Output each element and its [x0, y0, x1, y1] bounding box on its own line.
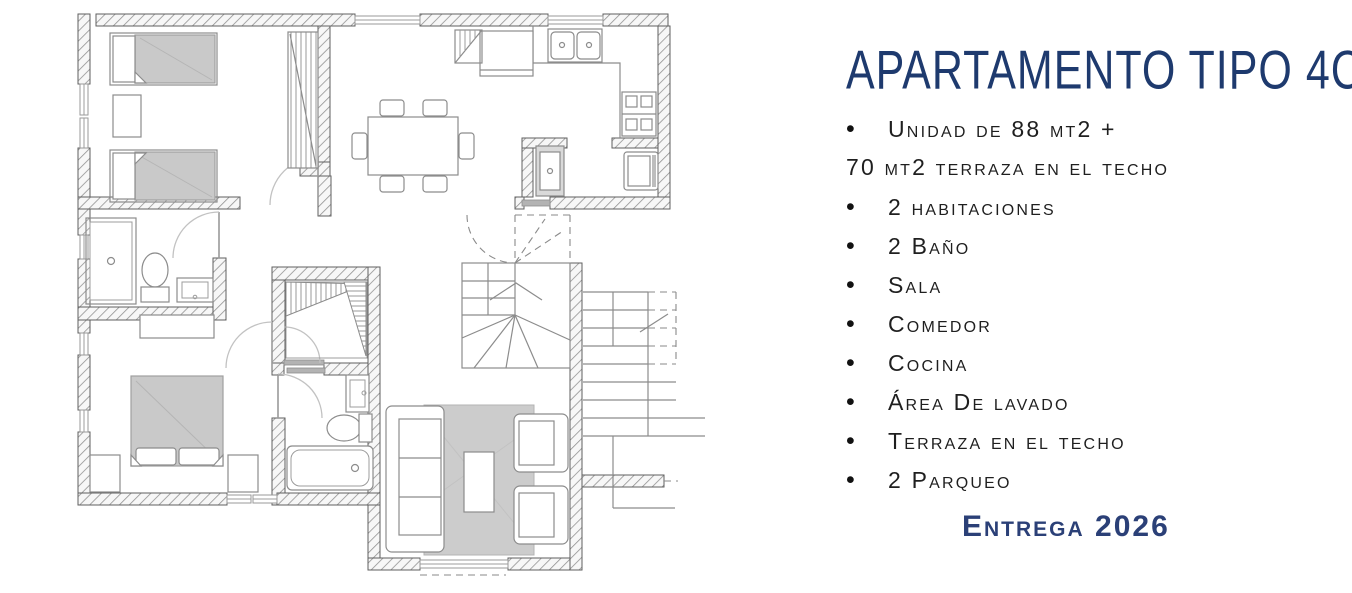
laundry-sink-icon: [536, 146, 564, 196]
bullet-icon: •: [846, 349, 888, 378]
delivery-year: Entrega 2026: [962, 510, 1342, 544]
info-panel: APARTAMENTO TIPO 4C •Unidad de 88 mt2 +•…: [846, 40, 1342, 544]
window: [548, 16, 603, 24]
floor-plan: [0, 0, 720, 593]
toilet-icon: [327, 414, 372, 442]
bathroom-2: [287, 375, 373, 490]
toilet-icon: [141, 253, 169, 302]
bullet-icon: •: [846, 388, 888, 417]
feature-item: •Unidad de 88 mt2 +: [846, 115, 1342, 154]
window: [80, 118, 88, 148]
door-under-stairs-dashed: [467, 215, 570, 263]
bullet-icon: •: [846, 466, 888, 495]
armchair-icon: [514, 486, 568, 544]
feature-item: •Área De lavado: [846, 388, 1342, 427]
interior-stairs-icon: [462, 263, 570, 368]
bullet-icon: •: [846, 115, 888, 144]
double-bed-icon: [131, 376, 223, 466]
door-bathroom-1: [173, 212, 219, 258]
bullet-icon: •: [846, 271, 888, 300]
bullet-icon: •: [846, 232, 888, 261]
dresser-icon: [140, 315, 214, 338]
bullet-icon: •: [846, 427, 888, 456]
window: [420, 560, 508, 568]
feature-text: Sala: [888, 272, 942, 299]
bullet-icon: •: [846, 193, 888, 222]
chair-icon: [423, 176, 447, 192]
pantry-shelf-icon: [455, 30, 482, 63]
bathroom-sink-icon: [346, 375, 369, 412]
door-master-bedroom: [226, 322, 272, 368]
refrigerator-icon: [480, 31, 533, 76]
chair-icon: [380, 176, 404, 192]
chair-icon: [423, 100, 447, 116]
feature-item: •Comedor: [846, 310, 1342, 349]
feature-item: •2 Baño: [846, 232, 1342, 271]
bullet-icon: •: [846, 310, 888, 339]
window: [227, 495, 251, 503]
sofa-icon: [386, 406, 444, 552]
window: [80, 84, 88, 115]
feature-text: 2 Baño: [888, 233, 970, 260]
nightstand-icon: [228, 455, 258, 492]
living-room: [386, 405, 568, 555]
chair-icon: [352, 133, 367, 159]
armchair-icon: [514, 414, 568, 472]
twin-bed-icon: [110, 150, 217, 202]
dining-area: [352, 100, 474, 192]
nightstand-icon: [90, 455, 120, 492]
coffee-table-icon: [464, 452, 494, 512]
feature-item: •Cocina: [846, 349, 1342, 388]
feature-text: Área De lavado: [888, 389, 1070, 416]
feature-item: •Sala: [846, 271, 1342, 310]
page-title: APARTAMENTO TIPO 4C: [846, 40, 1342, 102]
bathtub-icon: [287, 446, 373, 490]
feature-item: •2 habitaciones: [846, 193, 1342, 232]
feature-item: •Terraza en el techo: [846, 427, 1342, 466]
kitchen: [455, 26, 658, 196]
chair-icon: [380, 100, 404, 116]
bathroom-sink-icon: [177, 278, 213, 302]
twin-bed-icon: [110, 33, 217, 85]
window: [80, 333, 88, 355]
window: [355, 16, 420, 24]
feature-item: •2 Parqueo: [846, 466, 1342, 505]
window: [253, 495, 277, 503]
flyer: { "panel": { "title": "APARTAMENTO TIPO …: [0, 0, 1352, 593]
stove-icon: [622, 92, 656, 136]
feature-text: Unidad de 88 mt2 +: [888, 116, 1117, 143]
window: [80, 235, 88, 259]
bedroom-closet-icon: [288, 32, 318, 168]
feature-list: •Unidad de 88 mt2 +•70 mt2 terraza en el…: [846, 115, 1342, 505]
door-laundry-sliding: [522, 200, 550, 206]
feature-text: 2 Parqueo: [888, 467, 1012, 494]
chair-icon: [459, 133, 474, 159]
bathroom-1: [86, 218, 213, 304]
feature-item: •70 mt2 terraza en el techo: [846, 154, 1342, 193]
feature-text: 2 habitaciones: [888, 194, 1056, 221]
double-sink-icon: [548, 29, 602, 62]
window: [80, 410, 88, 432]
bedroom-1: [110, 32, 318, 202]
dining-table-icon: [368, 117, 458, 175]
master-bedroom: [90, 315, 258, 492]
feature-text: Cocina: [888, 350, 968, 377]
feature-text: 70 mt2 terraza en el techo: [846, 154, 1169, 181]
feature-text: Comedor: [888, 311, 992, 338]
feature-text: Terraza en el techo: [888, 428, 1126, 455]
door-closet-sliding: [284, 327, 325, 373]
walk-in-closet-icon: [286, 282, 367, 358]
shower-icon: [86, 218, 136, 304]
washer-icon: [624, 152, 658, 190]
door-bathroom-2: [278, 374, 322, 418]
nightstand-icon: [113, 95, 141, 137]
